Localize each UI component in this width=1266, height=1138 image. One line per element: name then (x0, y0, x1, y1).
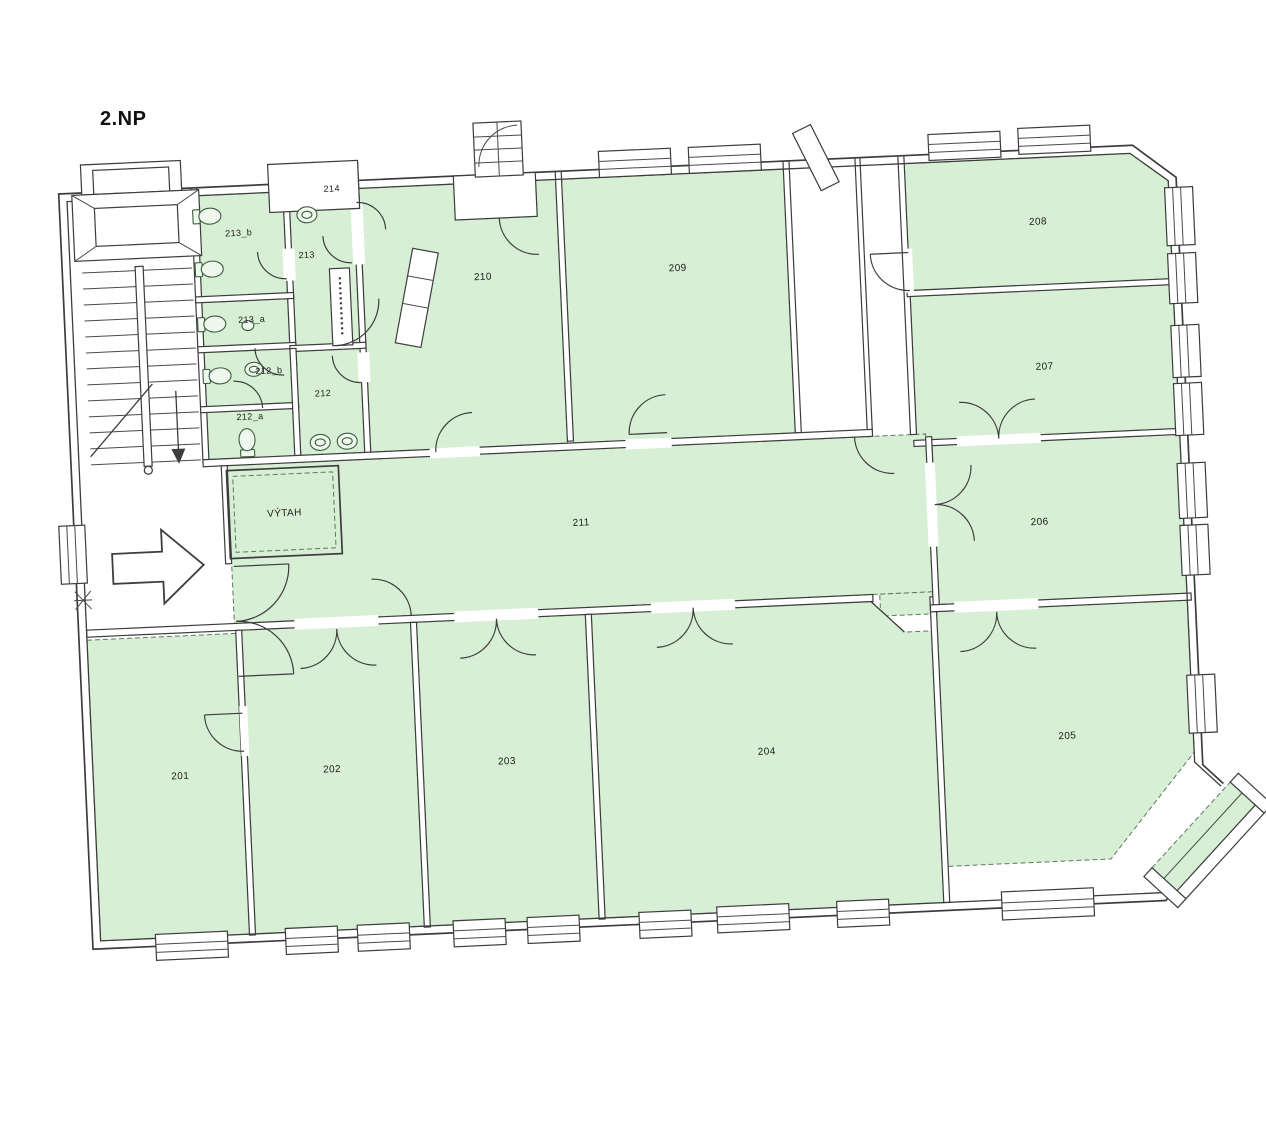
window (1187, 674, 1218, 733)
lobby-recess (453, 172, 537, 220)
room-label-210: 210 (474, 271, 492, 283)
room-202-area (242, 622, 425, 933)
window-break-mark (74, 591, 93, 610)
window (1177, 462, 1207, 518)
room-214-box (268, 160, 360, 212)
window (1171, 324, 1201, 377)
room-201-area (87, 633, 250, 940)
room-label-205: 205 (1058, 730, 1076, 742)
room-label-204: 204 (758, 746, 776, 758)
toilet-icon (193, 208, 222, 225)
floor-plan-svg: 2.NP (0, 0, 1266, 1138)
entrance-arrow-icon (111, 528, 205, 606)
room-label-208: 208 (1029, 216, 1047, 228)
window (1165, 187, 1196, 246)
corridor-arm-area (880, 592, 934, 616)
stair-down-arrow-icon (169, 391, 186, 465)
toilet-icon (197, 316, 226, 333)
window (59, 525, 88, 584)
window (598, 148, 671, 177)
toilet-icon (239, 428, 256, 457)
floor-plan-page: 2.NP (0, 0, 1266, 1138)
building-plan: 213_b 213 214 213_a 212_b 212 212_a 210 … (41, 88, 1266, 964)
toilet-icon (195, 261, 224, 278)
room-label-213b: 213_b (225, 227, 252, 238)
window (285, 926, 338, 954)
room-label-207: 207 (1035, 361, 1053, 373)
window (155, 931, 228, 960)
window (527, 915, 580, 943)
room-label-214: 214 (323, 183, 340, 194)
window (1001, 888, 1094, 920)
window (688, 144, 761, 173)
window (1173, 382, 1203, 435)
sink-icon (297, 206, 318, 223)
room-label-213: 213 (298, 249, 315, 260)
stair-skylight (70, 160, 201, 262)
window (837, 899, 890, 927)
staircase (82, 264, 201, 477)
room-label-201: 201 (171, 771, 189, 783)
room-label-211: 211 (572, 517, 590, 529)
room-label-213a: 213_a (238, 314, 265, 325)
window (1168, 253, 1198, 304)
room-203-area (416, 615, 599, 926)
room-label-209: 209 (669, 263, 687, 275)
room-206-area (932, 434, 1187, 604)
sink-icon (337, 433, 358, 450)
window (717, 904, 790, 933)
room-label-212: 212 (315, 388, 332, 399)
chimney-top (793, 125, 840, 191)
sink-icon (310, 434, 331, 451)
window (1180, 524, 1210, 575)
room-label-206: 206 (1030, 516, 1048, 528)
closet-strip (329, 268, 352, 346)
room-210-area (359, 179, 568, 452)
room-label-212a: 212_a (236, 411, 263, 422)
window (928, 131, 1001, 160)
toilet-icon (203, 367, 232, 384)
window (357, 923, 410, 951)
room-204-area (591, 599, 943, 918)
room-label-203: 203 (498, 756, 516, 768)
window (1018, 125, 1091, 154)
window (453, 919, 506, 947)
room-label-202: 202 (323, 764, 341, 776)
window (639, 910, 692, 938)
room-209-area (562, 169, 796, 443)
roof-shaft (473, 121, 523, 177)
floor-title: 2.NP (100, 108, 146, 130)
room-label-212b: 212_b (255, 365, 282, 376)
